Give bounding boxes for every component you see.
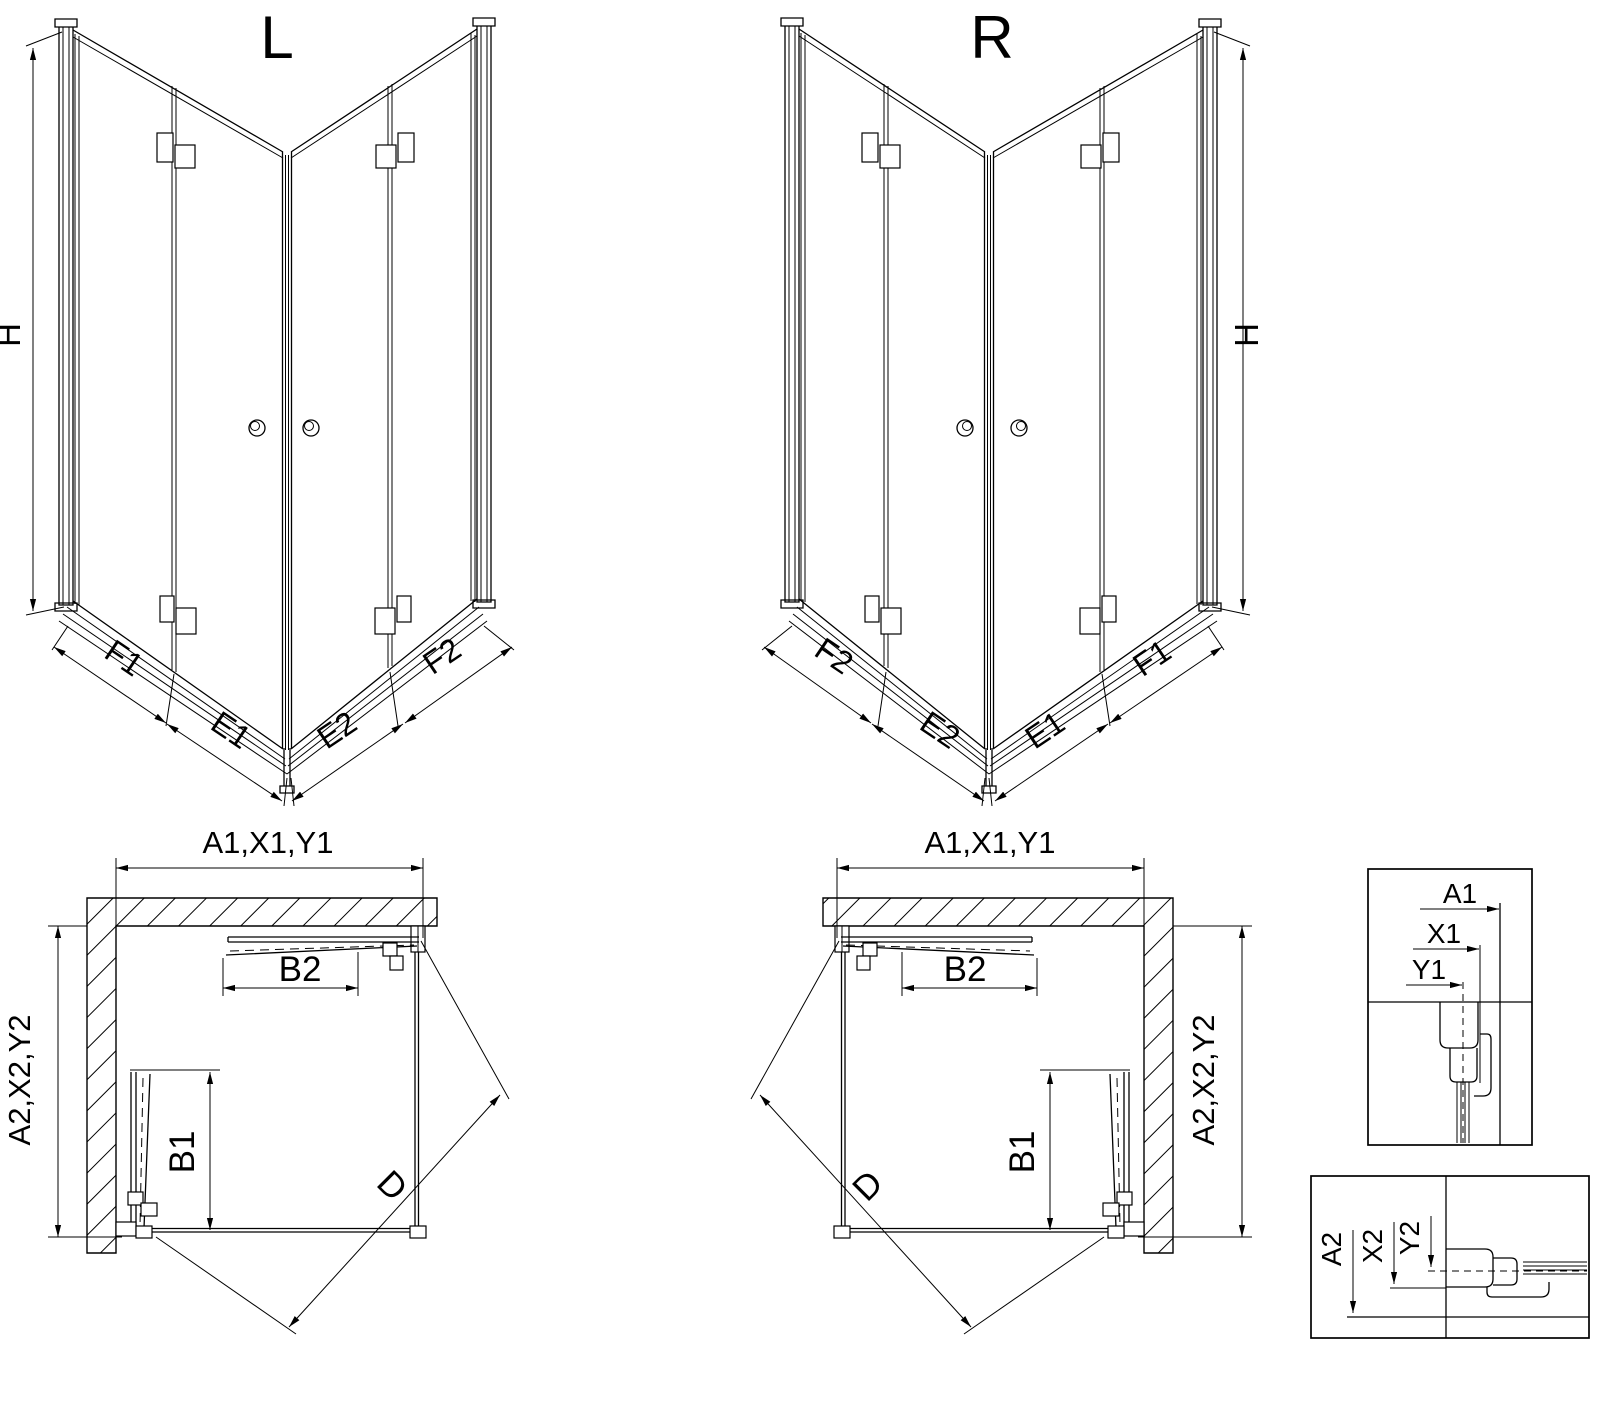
dim-label-depth: A2,X2,Y2	[2, 1015, 37, 1146]
view-title-right: R	[970, 4, 1013, 71]
detail-label-y1: Y1	[1412, 954, 1446, 985]
dim-label-b2: B2	[279, 950, 322, 989]
detail-label-a2: A2	[1316, 1232, 1347, 1266]
dim-label-depth: A2,X2,Y2	[1186, 1015, 1221, 1146]
dim-label-d: D	[369, 1163, 414, 1208]
dim-label-e1: E1	[205, 704, 258, 756]
view-title-left: L	[260, 4, 293, 71]
detail-width-profile: A1 X1 Y1	[1368, 869, 1532, 1145]
dim-label-b1: B1	[163, 1131, 202, 1174]
plan-view-l: A1,X1,Y1 A2,X2,Y2 B2 B1 D	[2, 825, 509, 1334]
detail-label-x2: X2	[1357, 1229, 1388, 1263]
wall-profile-section	[1446, 1249, 1587, 1297]
dim-label-h: H	[1228, 323, 1265, 347]
dim-label-d: D	[845, 1163, 890, 1208]
dim-label-b2: B2	[944, 950, 987, 989]
dim-label-width: A1,X1,Y1	[203, 825, 334, 860]
shower-enclosure-technical-drawing: H F1 E1 E2 F2 L	[0, 0, 1600, 1413]
dim-label-e2: E2	[914, 704, 967, 756]
plan-r-door-side-open	[1103, 1072, 1144, 1238]
dim-label-e1: E1	[1019, 704, 1072, 756]
plan-l-door-side-open	[116, 1072, 157, 1238]
dim-label-e2: E2	[311, 704, 364, 756]
detail-depth-profile: A2 X2 Y2	[1311, 1176, 1589, 1338]
door-knob	[957, 420, 1027, 436]
detail-label-y2: Y2	[1394, 1221, 1425, 1255]
wall-profile-section	[1440, 1002, 1491, 1143]
detail-label-a1: A1	[1443, 878, 1477, 909]
iso-view-r-dimensions: H F2 E2 E1 F1	[762, 32, 1265, 806]
iso-view-l-dimensions: H F1 E1 E2 F2	[0, 32, 514, 806]
plan-view-r: A1,X1,Y1 A2,X2,Y2 B2 B1 D	[751, 825, 1252, 1334]
dim-label-f2: F2	[416, 631, 467, 682]
dim-label-h: H	[0, 323, 27, 347]
plan-r-door-top-open	[841, 937, 1034, 970]
iso-view-r: H F2 E2 E1 F1 R	[762, 4, 1265, 806]
dim-label-width: A1,X1,Y1	[925, 825, 1056, 860]
dim-label-f1: F1	[99, 633, 150, 684]
dim-label-f2: F2	[809, 631, 860, 682]
detail-label-x1: X1	[1427, 918, 1461, 949]
dim-label-b1: B1	[1003, 1131, 1042, 1174]
door-knob	[249, 420, 319, 436]
dim-label-f1: F1	[1126, 633, 1177, 684]
drawing-canvas: H F1 E1 E2 F2 L	[0, 0, 1600, 1413]
iso-view-l: H F1 E1 E2 F2 L	[0, 4, 514, 806]
plan-l-door-top-open	[226, 937, 419, 970]
